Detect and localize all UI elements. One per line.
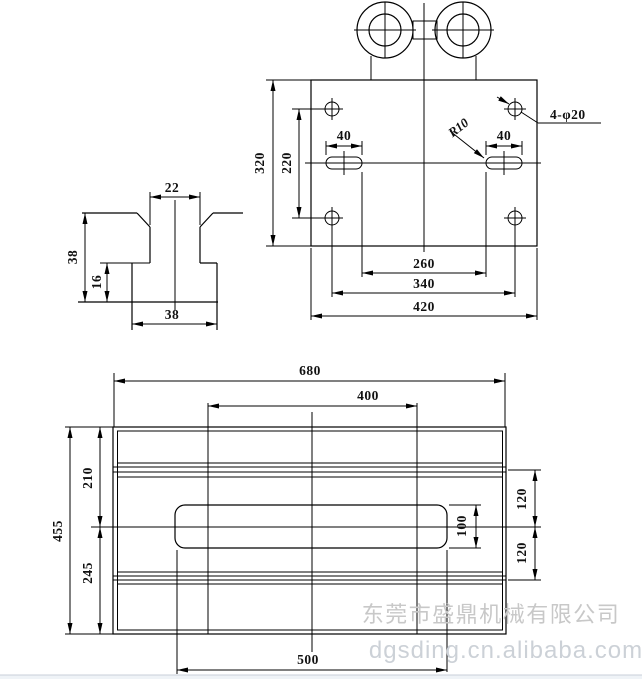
dim-label-320: 320 — [252, 152, 267, 174]
dim-label-120-bottom: 120 — [514, 542, 529, 564]
dim-40-left: 40 — [326, 128, 362, 155]
watermark-company: 东莞市盛鼎机械有限公司 — [362, 603, 621, 628]
dim-label-38-height: 38 — [65, 250, 80, 265]
engineering-drawing: 320 220 40 40 R10 — [0, 0, 642, 679]
dim-40-right: 40 — [486, 128, 522, 155]
watermark-website: dgsding.cn.alibaba.com — [369, 637, 642, 664]
t-slot-outline — [78, 200, 243, 330]
dim-label-455: 455 — [50, 520, 65, 542]
dim-245: 245 — [80, 527, 100, 634]
holes-label: 4-φ20 — [550, 107, 586, 122]
dim-label-220: 220 — [279, 152, 294, 174]
dim-label-340: 340 — [413, 276, 435, 291]
dim-label-400: 400 — [357, 388, 379, 403]
dim-120-bottom: 120 — [508, 527, 541, 580]
dim-label-420: 420 — [413, 299, 435, 314]
page-edge — [0, 675, 642, 679]
dim-38-width: 38 — [132, 307, 217, 324]
dim-label-210: 210 — [80, 467, 95, 489]
dim-label-260: 260 — [413, 256, 435, 271]
slots — [305, 151, 541, 175]
r10-label: R10 — [444, 115, 471, 141]
dim-455: 455 — [50, 427, 113, 634]
dim-label-16: 16 — [89, 275, 104, 290]
dim-label-120-top: 120 — [514, 488, 529, 510]
top-view: 320 220 40 40 R10 — [252, 2, 601, 320]
drawing-canvas: 320 220 40 40 R10 — [0, 0, 642, 679]
dim-400: 400 — [208, 388, 417, 406]
dim-680: 680 — [114, 363, 505, 427]
dim-38-height: 38 — [65, 213, 85, 302]
dim-100: 100 — [449, 505, 481, 548]
profile-view: 22 38 16 38 — [65, 180, 243, 330]
dim-label-40-left: 40 — [337, 128, 352, 143]
dim-210: 210 — [80, 427, 100, 527]
holes-callout: 4-φ20 — [497, 97, 601, 123]
dim-label-245: 245 — [80, 562, 95, 584]
dim-label-100: 100 — [454, 515, 469, 537]
base-outline — [91, 403, 541, 674]
r10-callout: R10 — [444, 115, 484, 158]
dim-label-680: 680 — [299, 363, 321, 378]
dim-120-top: 120 — [508, 470, 541, 527]
dim-label-40-right: 40 — [497, 128, 512, 143]
dim-label-500: 500 — [297, 652, 319, 667]
dim-16: 16 — [89, 263, 107, 302]
dim-label-38-width: 38 — [165, 307, 180, 322]
dim-label-22: 22 — [165, 180, 180, 195]
